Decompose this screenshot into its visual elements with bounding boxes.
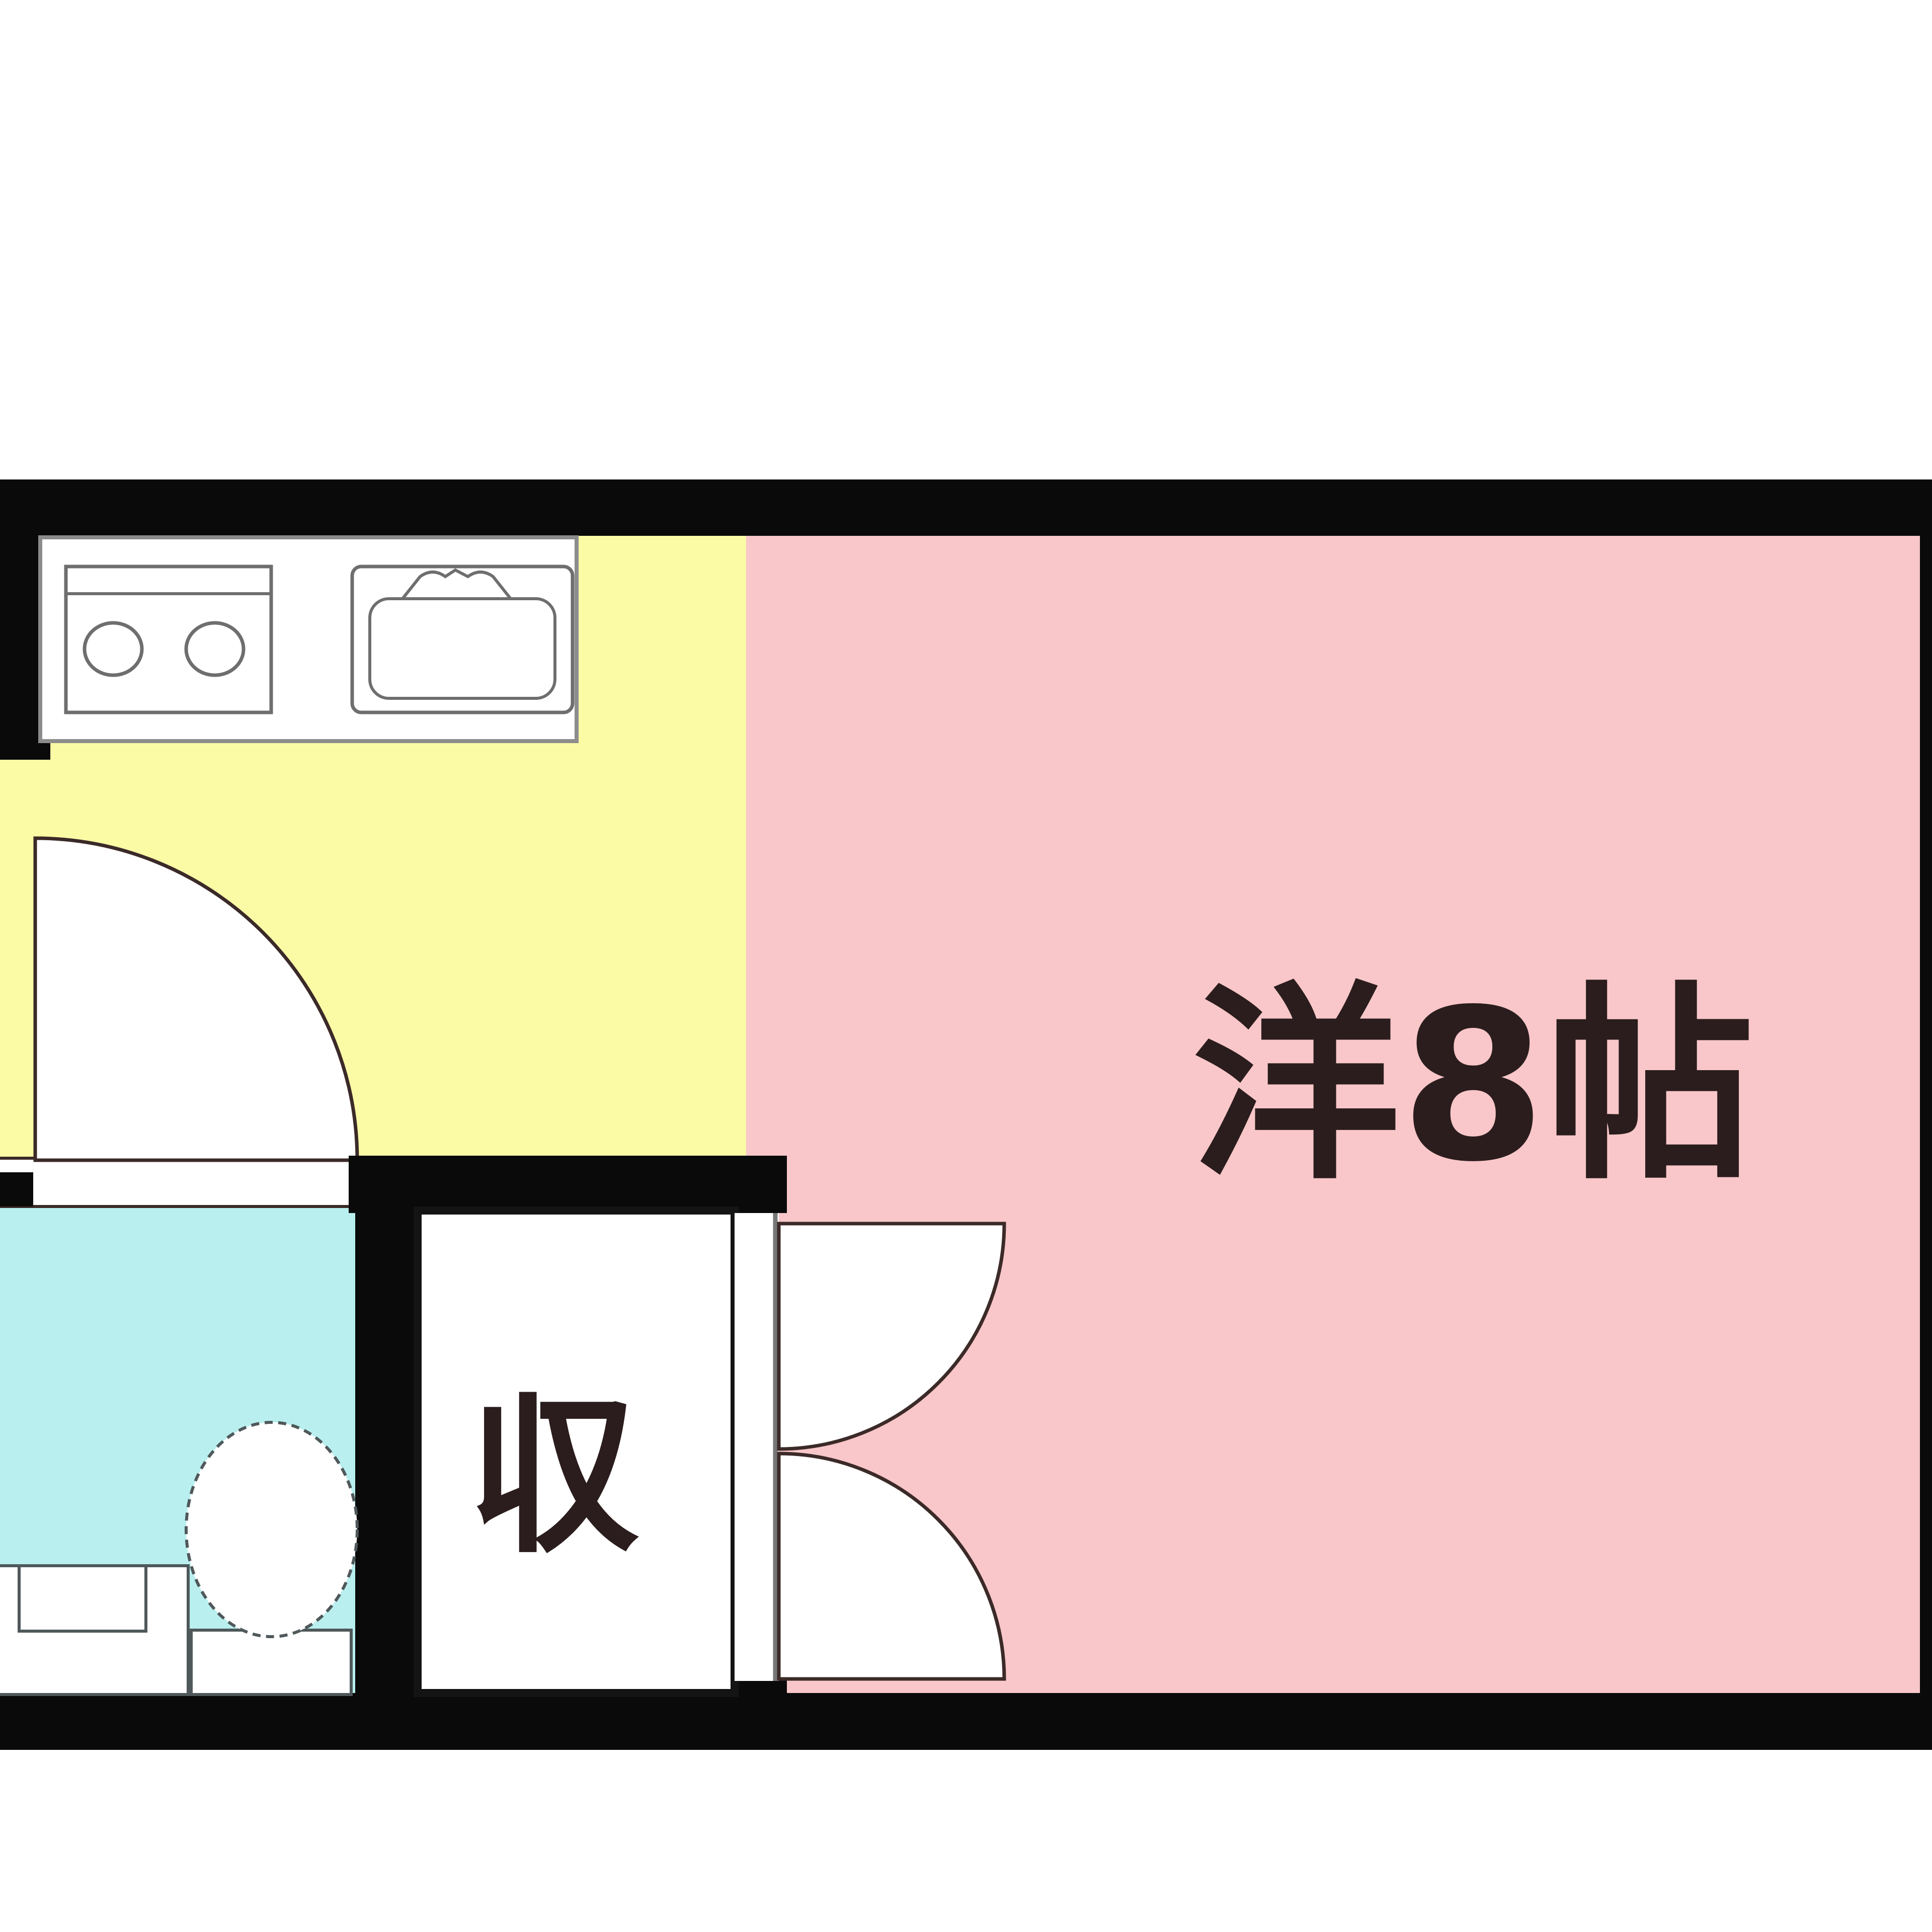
vanity-basin xyxy=(19,1566,146,1631)
stove-burner-right xyxy=(186,623,244,675)
western-room-label: 洋8帖 xyxy=(1192,964,1755,1207)
sink xyxy=(352,567,573,712)
kitchen-counter xyxy=(40,537,577,741)
door-threshold xyxy=(0,1158,357,1206)
stove-burner-left xyxy=(85,623,142,675)
right-wall xyxy=(1920,479,1932,1750)
closet-label: 収 xyxy=(468,1377,639,1576)
stove xyxy=(66,567,271,712)
door-jamb-block xyxy=(0,1172,33,1206)
toilet-tank xyxy=(191,1630,351,1695)
bathroom-closet-wall xyxy=(355,1156,418,1750)
floor-plan-image: 収 洋8帖 xyxy=(0,0,1932,1932)
closet: 収 xyxy=(418,1211,779,1693)
bottom-wall xyxy=(0,1693,1932,1750)
closet-door-jamb-strip xyxy=(735,1213,779,1681)
floor-plan-svg: 収 洋8帖 xyxy=(0,0,1932,1932)
sink-basin xyxy=(370,599,555,698)
top-wall xyxy=(0,479,1932,536)
toilet-bowl xyxy=(186,1422,357,1637)
